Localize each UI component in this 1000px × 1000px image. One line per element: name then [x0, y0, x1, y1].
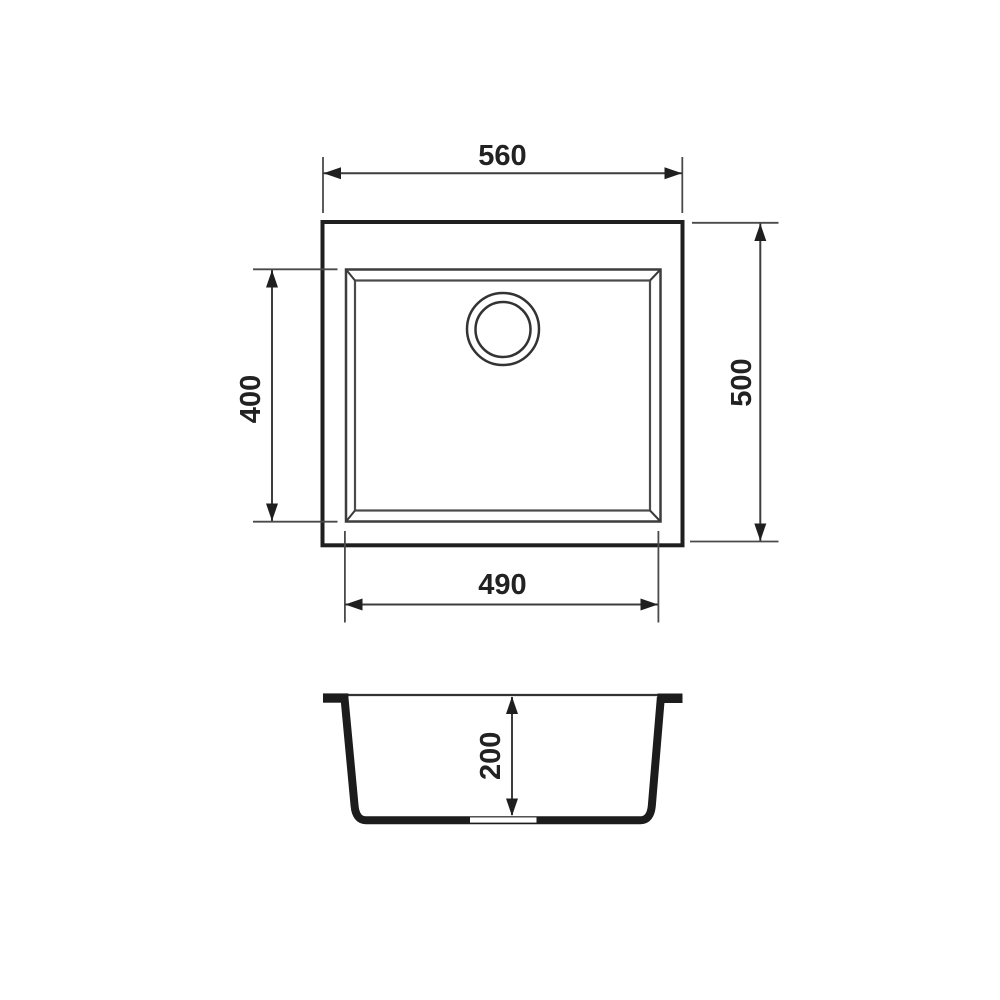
svg-text:400: 400 [235, 375, 267, 423]
svg-text:490: 490 [478, 569, 526, 601]
svg-text:500: 500 [726, 358, 758, 406]
svg-text:560: 560 [478, 140, 526, 172]
svg-text:200: 200 [475, 732, 507, 780]
